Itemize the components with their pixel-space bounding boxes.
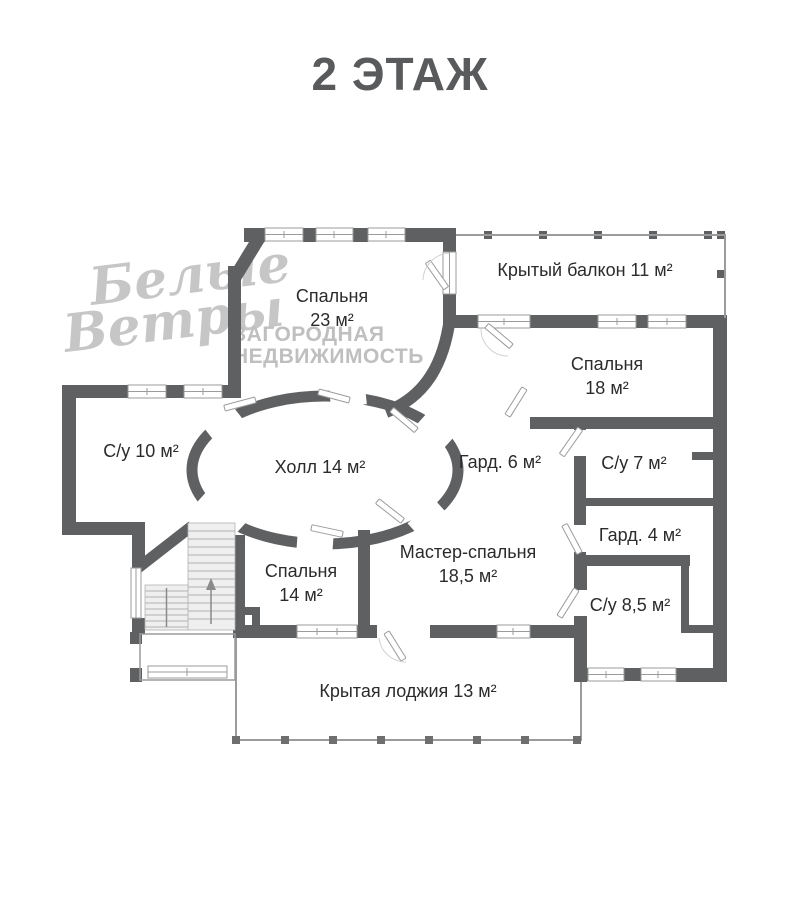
floor-plan: 2 ЭТАЖ Белые Ветры ЗАГОРОДНАЯ НЕДВИЖИМОС… — [0, 0, 800, 900]
watermark-tagline-line1: ЗАГОРОДНАЯ — [233, 323, 384, 346]
door-bath7 — [559, 427, 582, 457]
room-label-balcony: Крытый балкон 11 м² — [497, 260, 672, 280]
room-label-loggia: Крытая лоджия 13 м² — [319, 681, 496, 701]
staircase — [145, 523, 235, 630]
room-label-master-name: Мастер-спальня — [400, 542, 537, 562]
room-label-bedroom18-area: 18 м² — [585, 378, 628, 398]
watermark-logo: Белые Ветры ЗАГОРОДНАЯ НЕДВИЖИМОСТЬ — [58, 233, 424, 368]
room-label-bedroom14-area: 14 м² — [279, 585, 322, 605]
room-label-bath10: С/у 10 м² — [103, 441, 178, 461]
room-label-wardrobe6: Гард. 6 м² — [459, 452, 541, 472]
room-label-wardrobe4: Гард. 4 м² — [599, 525, 681, 545]
window-entrance-balcony — [148, 666, 227, 678]
room-label-bath85: С/у 8,5 м² — [590, 595, 670, 615]
room-label-bedroom23-area: 23 м² — [310, 310, 353, 330]
door-wardrobe4 — [562, 523, 582, 554]
door-master — [376, 499, 405, 523]
floor-plan-page: 2 ЭТАЖ Белые Ветры ЗАГОРОДНАЯ НЕДВИЖИМОС… — [0, 0, 800, 900]
room-label-master-area: 18,5 м² — [439, 566, 497, 586]
room-label-bedroom14-name: Спальня — [265, 561, 337, 581]
window-stairs — [131, 568, 141, 618]
window-bedroom23 — [265, 228, 405, 241]
room-label-hall: Холл 14 м² — [275, 457, 366, 477]
page-title: 2 ЭТАЖ — [311, 48, 488, 100]
door-bedroom18 — [505, 387, 527, 417]
room-label-bedroom23-name: Спальня — [296, 286, 368, 306]
room-label-bath7: С/у 7 м² — [601, 453, 666, 473]
room-label-bedroom18-name: Спальня — [571, 354, 643, 374]
door-bath85 — [557, 588, 579, 618]
door-loggia — [384, 631, 406, 661]
watermark-tagline-line2: НЕДВИЖИМОСТЬ — [233, 345, 424, 368]
